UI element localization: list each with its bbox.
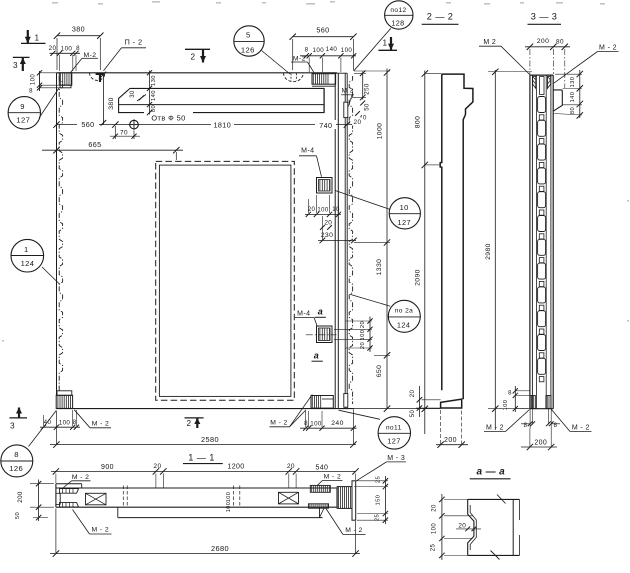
svg-text:М - 2: М - 2 [599, 45, 617, 52]
svg-text:20: 20 [432, 504, 438, 512]
svg-text:20: 20 [458, 523, 466, 530]
svg-text:М - 2: М - 2 [92, 420, 109, 427]
svg-text:М - 2: М - 2 [324, 474, 341, 481]
svg-text:20: 20 [287, 463, 295, 470]
svg-text:100: 100 [360, 330, 366, 341]
svg-text:100: 100 [310, 420, 322, 427]
svg-text:140: 140 [570, 92, 576, 103]
svg-text:М - 2: М - 2 [572, 425, 590, 432]
svg-text:9: 9 [20, 102, 25, 111]
svg-text:Отв Ф 50: Отв Ф 50 [151, 114, 185, 123]
svg-text:740: 740 [319, 121, 332, 130]
svg-text:127: 127 [16, 116, 30, 125]
svg-text:20: 20 [410, 390, 416, 398]
svg-text:20: 20 [354, 119, 362, 126]
svg-text:М-2: М-2 [293, 56, 306, 63]
svg-text:по 2а: по 2а [395, 308, 413, 315]
svg-text:50: 50 [365, 103, 371, 111]
svg-text:240: 240 [331, 420, 344, 427]
svg-text:М - 2: М - 2 [345, 527, 362, 534]
svg-text:М - 2: М - 2 [270, 420, 287, 427]
svg-text:1000: 1000 [377, 123, 384, 140]
svg-text:650: 650 [376, 365, 383, 378]
svg-text:100: 100 [61, 46, 73, 53]
svg-text:126: 126 [9, 464, 23, 473]
svg-text:П - 2: П - 2 [125, 38, 143, 47]
svg-text:М 3: М 3 [342, 88, 354, 95]
svg-text:100: 100 [226, 492, 232, 503]
svg-text:100: 100 [432, 523, 438, 534]
svg-text:100: 100 [503, 400, 509, 411]
svg-text:3: 3 [13, 61, 18, 70]
svg-text:а: а [314, 351, 319, 361]
svg-text:М-4: М-4 [301, 148, 314, 155]
svg-text:а: а [318, 307, 323, 317]
svg-text:130: 130 [570, 77, 576, 88]
svg-text:3 — 3: 3 — 3 [531, 12, 558, 22]
svg-text:50: 50 [15, 512, 21, 519]
svg-text:8: 8 [73, 419, 77, 426]
svg-text:124: 124 [397, 321, 411, 330]
svg-text:20: 20 [153, 463, 161, 470]
svg-text:127: 127 [387, 437, 401, 446]
svg-text:665: 665 [88, 140, 101, 149]
svg-text:200: 200 [444, 437, 457, 444]
svg-text:М - 2: М - 2 [92, 527, 109, 534]
svg-text:560: 560 [316, 26, 329, 35]
svg-text:100: 100 [31, 74, 37, 85]
svg-text:1: 1 [383, 39, 388, 48]
svg-text:М - 2: М - 2 [72, 474, 89, 481]
svg-text:80: 80 [570, 107, 576, 114]
svg-text:8: 8 [524, 422, 528, 429]
svg-text:1: 1 [35, 34, 40, 43]
svg-text:20: 20 [360, 321, 366, 328]
svg-text:80: 80 [556, 39, 564, 46]
svg-text:100: 100 [226, 502, 232, 513]
svg-text:1810: 1810 [214, 121, 232, 130]
svg-text:8: 8 [508, 391, 512, 397]
svg-text:126: 126 [241, 46, 255, 55]
svg-text:127: 127 [398, 218, 412, 227]
svg-text:М - 3: М - 3 [387, 455, 405, 462]
svg-text:25: 25 [431, 544, 437, 552]
svg-text:8: 8 [29, 89, 33, 95]
svg-text:2: 2 [191, 53, 196, 62]
svg-text:по11: по11 [386, 425, 402, 432]
svg-text:8: 8 [14, 450, 19, 459]
svg-text:8: 8 [305, 47, 309, 54]
svg-text:230: 230 [321, 232, 334, 239]
svg-text:200: 200 [537, 38, 550, 45]
svg-text:540: 540 [315, 465, 328, 472]
svg-text:560: 560 [81, 120, 94, 129]
svg-text:а — а: а — а [476, 467, 505, 478]
svg-text:2090: 2090 [415, 269, 422, 286]
svg-text:1200: 1200 [227, 464, 244, 471]
svg-text:2580: 2580 [201, 435, 219, 444]
svg-text:8: 8 [304, 420, 308, 427]
svg-text:140: 140 [326, 46, 338, 53]
svg-text:100: 100 [313, 47, 325, 54]
svg-text:8: 8 [76, 45, 80, 52]
svg-text:100: 100 [341, 47, 353, 54]
svg-text:130: 130 [151, 75, 157, 86]
svg-text:3: 3 [10, 422, 15, 431]
svg-text:150: 150 [376, 495, 382, 506]
svg-text:2680: 2680 [211, 544, 229, 553]
svg-text:200: 200 [534, 439, 547, 446]
svg-text:30: 30 [130, 90, 136, 98]
svg-text:128: 128 [391, 19, 404, 28]
svg-text:70: 70 [120, 130, 128, 137]
svg-text:124: 124 [21, 259, 35, 268]
svg-text:100: 100 [317, 208, 328, 214]
svg-text:200: 200 [17, 491, 24, 503]
svg-text:80: 80 [151, 105, 157, 112]
svg-text:10: 10 [400, 203, 409, 212]
svg-text:140: 140 [151, 90, 157, 101]
svg-text:по12: по12 [390, 7, 406, 14]
svg-text:20: 20 [308, 207, 316, 213]
svg-text:1: 1 [24, 245, 29, 254]
svg-text:1330: 1330 [376, 259, 383, 276]
svg-text:М-4: М-4 [297, 310, 310, 317]
svg-text:100: 100 [59, 420, 71, 427]
svg-text:2980: 2980 [485, 243, 492, 260]
svg-text:2: 2 [187, 419, 192, 428]
svg-text:5: 5 [246, 31, 251, 40]
svg-text:900: 900 [101, 464, 114, 471]
svg-text:8: 8 [554, 422, 558, 429]
svg-text:380: 380 [72, 25, 85, 34]
svg-text:250: 250 [364, 83, 371, 95]
svg-text:1 — 1: 1 — 1 [188, 453, 215, 463]
svg-text:50: 50 [410, 410, 416, 418]
svg-text:М 2: М 2 [483, 39, 496, 46]
svg-text:800: 800 [415, 116, 422, 129]
svg-text:25: 25 [376, 476, 382, 483]
svg-text:20: 20 [49, 45, 57, 52]
svg-text:М - 2: М - 2 [486, 425, 504, 432]
svg-text:2 — 2: 2 — 2 [427, 12, 454, 22]
svg-text:10: 10 [332, 207, 340, 213]
svg-text:380: 380 [108, 97, 115, 110]
